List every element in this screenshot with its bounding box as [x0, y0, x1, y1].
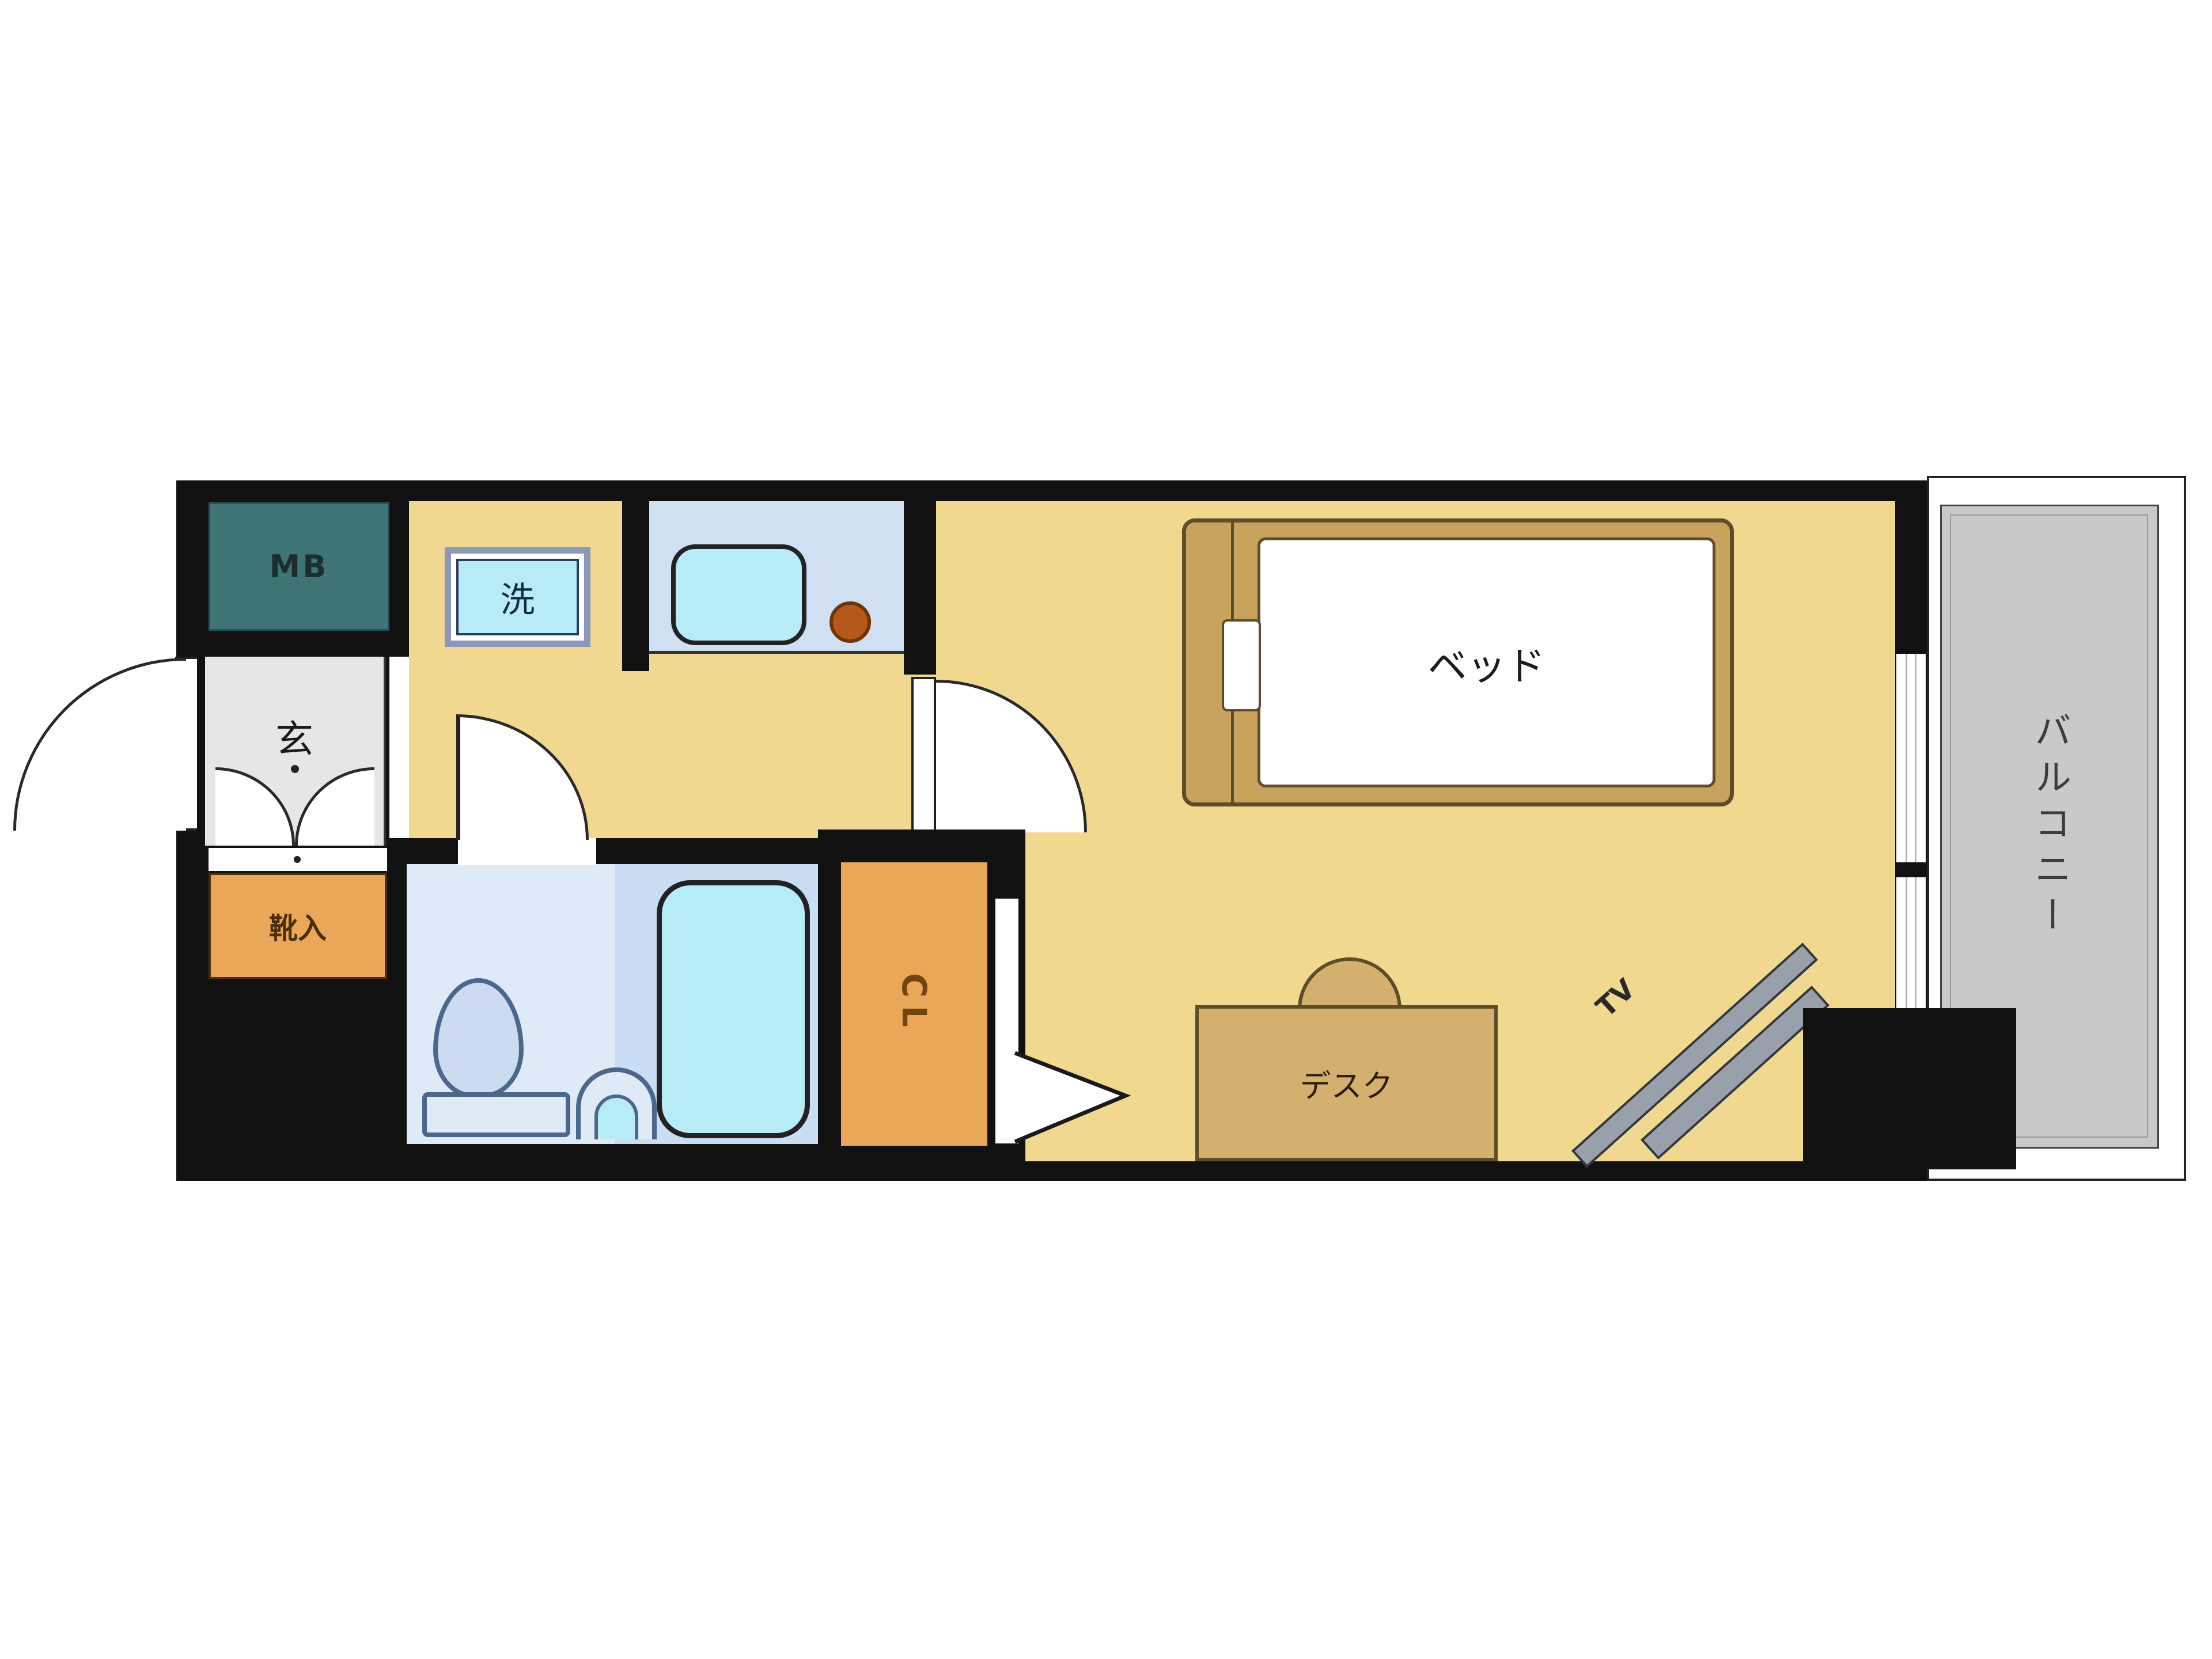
- entrance-door-swing: [13, 658, 186, 831]
- bed: ベッド: [1182, 518, 1734, 806]
- shoe-counter-dot: [294, 856, 301, 863]
- shoe-cabinet-label: 靴入: [269, 906, 327, 947]
- bath-sink-basin: [594, 1094, 638, 1139]
- washing-machine-label: 洗: [501, 572, 535, 622]
- entrance-label: 玄: [275, 709, 313, 764]
- bathtub: [657, 880, 810, 1138]
- wall-bottom: [176, 1161, 1927, 1181]
- shoe-cabinet: 靴入: [209, 873, 387, 979]
- wall-stub-kitchen: [904, 501, 936, 675]
- desk-label: デスク: [1300, 1060, 1393, 1106]
- corner-pillar: [1803, 1008, 2016, 1169]
- wall-top: [176, 480, 1927, 501]
- washing-machine: 洗: [445, 547, 590, 647]
- bathroom-doorway: [458, 838, 596, 865]
- kitchen-sink: [671, 544, 806, 645]
- toilet-tank: [422, 1092, 570, 1137]
- wall-stub-washer: [622, 501, 649, 671]
- closet-label: CL: [895, 973, 934, 1035]
- genkan-step: [389, 657, 409, 846]
- bed-label: ベッド: [1427, 634, 1545, 691]
- wall-left: [176, 480, 196, 1181]
- bed-pillow: [1222, 619, 1261, 711]
- meter-box: MB: [209, 502, 389, 631]
- stove-burner: [829, 601, 871, 643]
- genkan-door-handle-dot: [291, 765, 299, 773]
- desk: デスク: [1195, 1005, 1498, 1161]
- floor-plan: MB 玄 靴入 CL: [0, 0, 2212, 1659]
- balcony-label: バルコニー: [2023, 711, 2076, 942]
- closet: CL: [841, 862, 987, 1146]
- window-divider: [1896, 862, 1926, 877]
- meter-box-label: MB: [270, 548, 329, 585]
- closet-door-wedge: [1013, 1048, 1134, 1146]
- bed-mattress: ベッド: [1257, 537, 1715, 787]
- washing-machine-tub: 洗: [456, 559, 579, 635]
- hall-room-door-leaf: [911, 677, 936, 832]
